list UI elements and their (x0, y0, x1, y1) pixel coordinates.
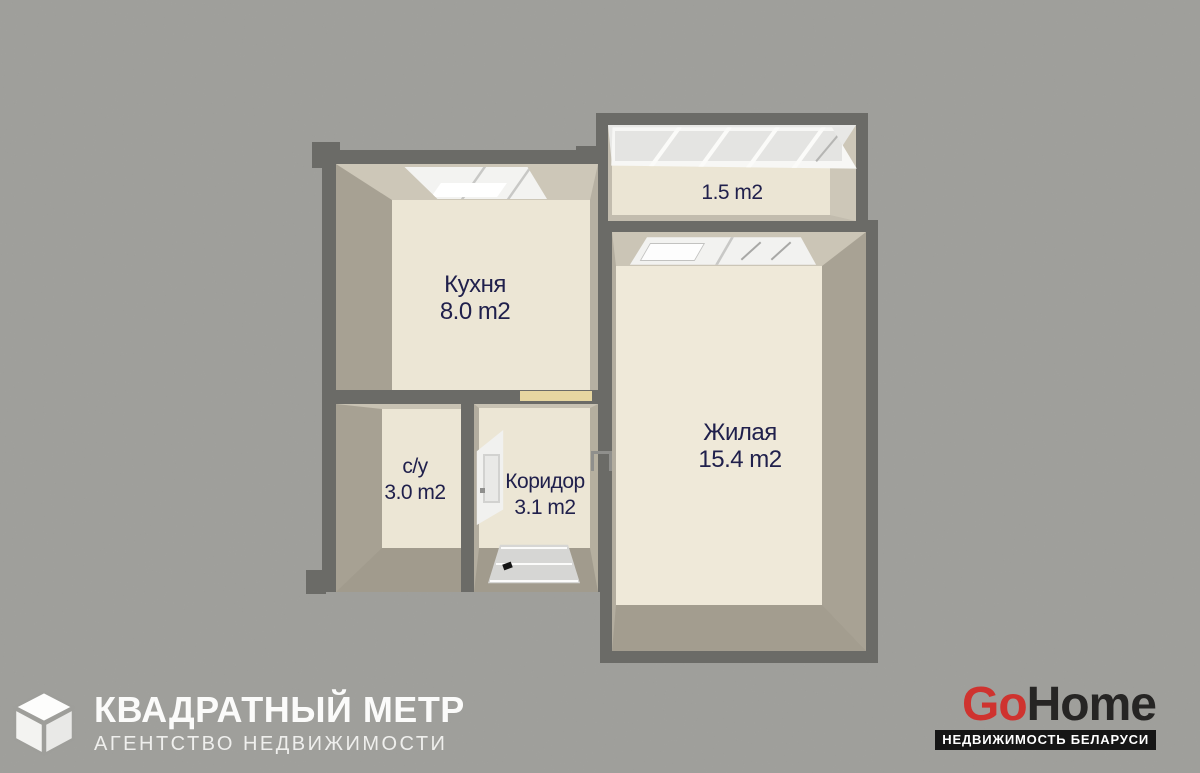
portal-wordmark-go: Go (962, 678, 1027, 731)
room-label-kitchen: Кухня 8.0 m2 (390, 271, 560, 325)
room-name: Жилая (650, 419, 830, 446)
doorway-threshold (520, 391, 592, 401)
agency-text: КВАДРАТНЫЙ МЕТР АГЕНТСТВО НЕДВИЖИМОСТИ (94, 692, 465, 754)
wall-corner-post (306, 570, 326, 594)
room-label-bathroom: с/у 3.0 m2 (350, 454, 480, 506)
door-handle (502, 562, 513, 571)
door-frame-line (490, 580, 578, 582)
floor-plan: Кухня 8.0 m2 Жилая 15.4 m2 1.5 m2 с/у 3.… (0, 0, 1200, 773)
room-area: 1.5 m2 (657, 182, 807, 204)
open-window-mark (771, 242, 792, 261)
floorplan-image: Кухня 8.0 m2 Жилая 15.4 m2 1.5 m2 с/у 3.… (0, 0, 1200, 773)
room-area: 8.0 m2 (390, 298, 560, 325)
window-pane (640, 243, 705, 261)
window-mullion (714, 236, 734, 266)
entrance-door (488, 544, 580, 584)
room-label-balcony: 1.5 m2 (657, 182, 807, 204)
window-mullion (507, 167, 532, 199)
room-area: 3.0 m2 (350, 480, 480, 506)
room-name: Кухня (390, 271, 560, 298)
portal-wordmark-home: Home (1027, 678, 1156, 731)
portal-wordmark: GoHome (962, 682, 1156, 728)
living-room-window (628, 236, 818, 266)
door-frame-line (501, 547, 567, 549)
agency-logo: КВАДРАТНЫЙ МЕТР АГЕНТСТВО НЕДВИЖИМОСТИ (10, 690, 465, 756)
cube-icon (10, 690, 78, 756)
room-label-living: Жилая 15.4 m2 (650, 419, 830, 473)
window-sill (431, 183, 507, 197)
portal-tagline: НЕДВИЖИМОСТЬ БЕЛАРУСИ (935, 730, 1156, 750)
agency-subtitle: АГЕНТСТВО НЕДВИЖИМОСТИ (94, 734, 465, 754)
room-name: Коридор (475, 469, 615, 495)
room-name: с/у (350, 454, 480, 480)
door-handle-mark (591, 451, 612, 471)
room-label-corridor: Коридор 3.1 m2 (475, 469, 615, 521)
room-area: 15.4 m2 (650, 446, 830, 473)
open-window-mark (741, 242, 762, 261)
portal-logo: GoHome НЕДВИЖИМОСТЬ БЕЛАРУСИ (935, 682, 1156, 750)
room-area: 3.1 m2 (475, 495, 615, 521)
agency-title: КВАДРАТНЫЙ МЕТР (94, 692, 465, 728)
balcony-window-band (610, 126, 858, 170)
